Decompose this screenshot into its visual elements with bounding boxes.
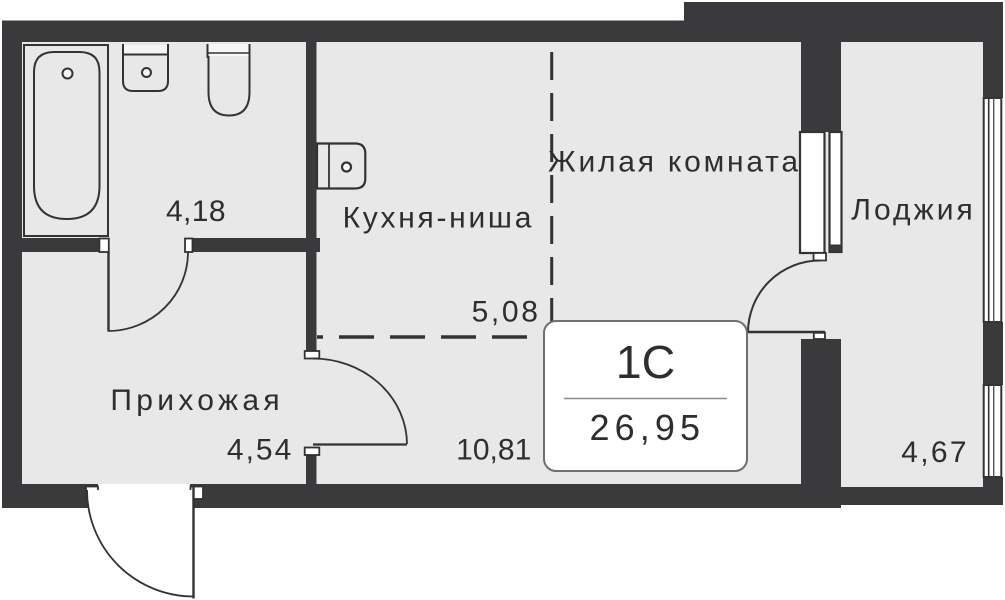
svg-text:4,54: 4,54 bbox=[227, 433, 291, 466]
svg-text:10,81: 10,81 bbox=[456, 433, 531, 466]
svg-text:Кухня-ниша: Кухня-ниша bbox=[343, 202, 532, 235]
svg-text:26,95: 26,95 bbox=[590, 407, 701, 448]
svg-text:4,67: 4,67 bbox=[901, 436, 966, 469]
svg-text:Жилая комната: Жилая комната bbox=[548, 145, 798, 178]
svg-text:4,18: 4,18 bbox=[166, 195, 226, 228]
svg-text:1С: 1С bbox=[616, 336, 675, 388]
svg-text:5,08: 5,08 bbox=[472, 295, 538, 328]
